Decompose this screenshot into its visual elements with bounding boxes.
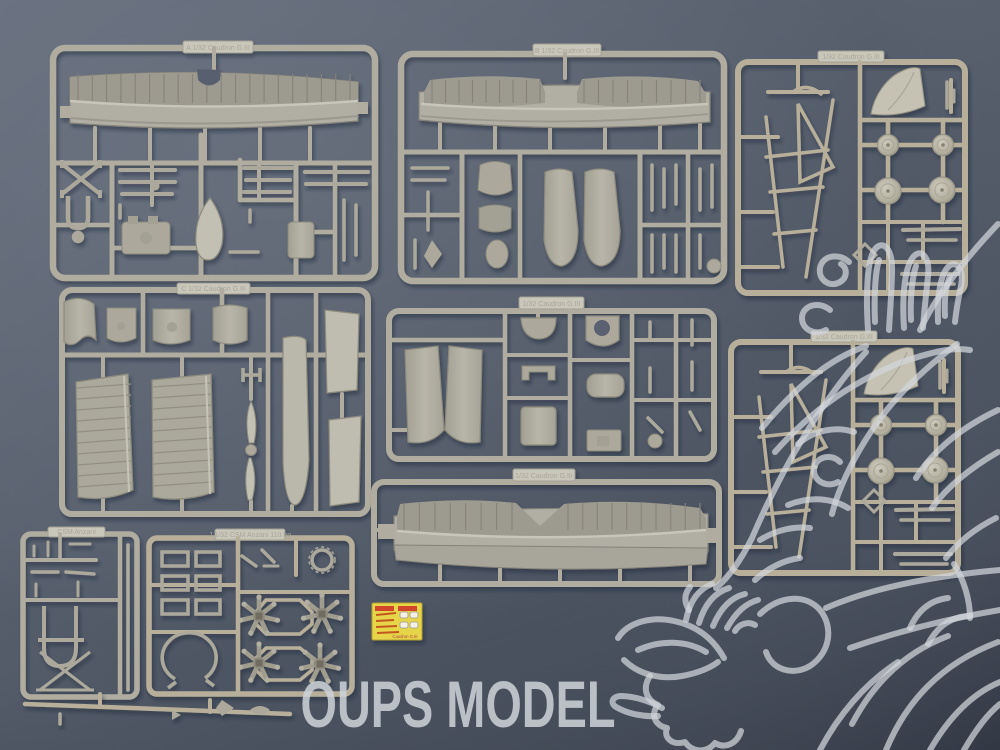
svg-text:CSM Anzani: CSM Anzani: [57, 529, 96, 536]
svg-text:B 1/32 Caudron G.III: B 1/32 Caudron G.III: [535, 48, 599, 55]
svg-text:1/32 Caudron G.III: 1/32 Caudron G.III: [815, 334, 873, 341]
svg-text:Caudron G.III: Caudron G.III: [392, 634, 417, 639]
svg-text:A 1/32 Caudron G.III: A 1/32 Caudron G.III: [186, 45, 250, 52]
svg-text:1/32 Caudron G.III: 1/32 Caudron G.III: [515, 473, 573, 480]
svg-text:C 1/32 Caudron G.III: C 1/32 Caudron G.III: [181, 286, 246, 293]
svg-text:1/32 Caudron G.III: 1/32 Caudron G.III: [822, 54, 880, 61]
svg-text:1/32 Caudron G.III: 1/32 Caudron G.III: [523, 301, 581, 308]
svg-text:J 1/32 CSM Anzani 110 hp: J 1/32 CSM Anzani 110 hp: [209, 532, 291, 539]
svg-text:OUPS MODEL: OUPS MODEL: [301, 667, 616, 741]
